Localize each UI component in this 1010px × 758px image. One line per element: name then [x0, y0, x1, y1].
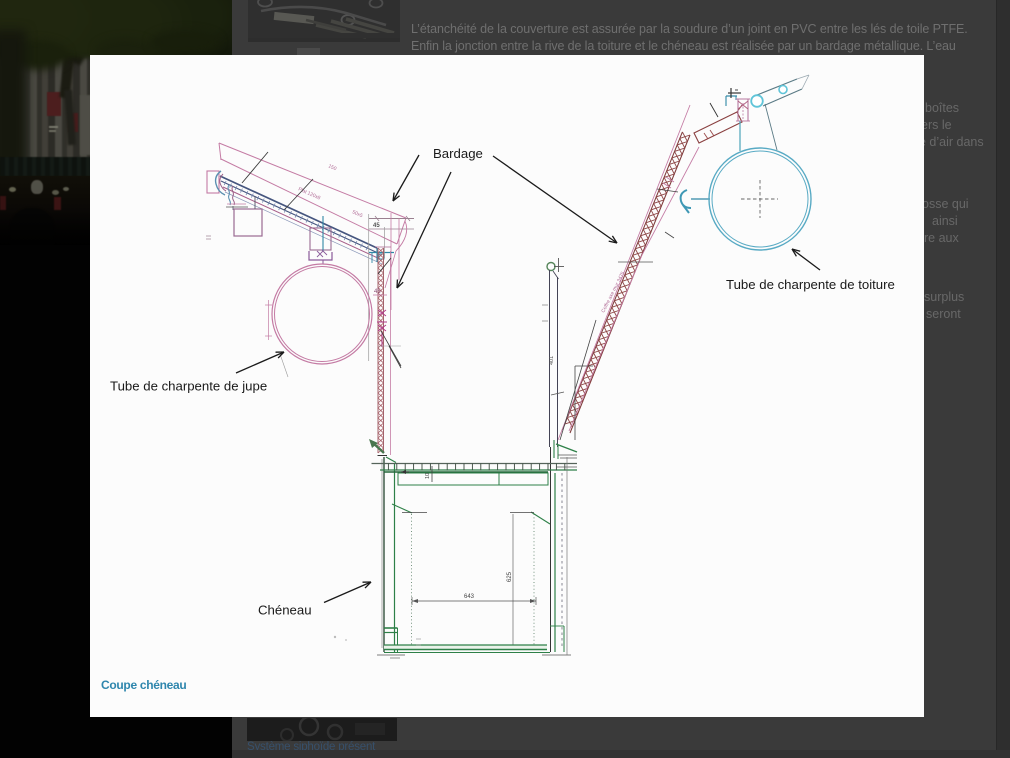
svg-text:50x5: 50x5 — [351, 209, 364, 219]
svg-text:150: 150 — [327, 163, 337, 172]
svg-text:Chéneau: Chéneau — [258, 603, 312, 618]
svg-text:10: 10 — [425, 473, 431, 479]
svg-text:45: 45 — [374, 289, 381, 295]
svg-text:Plat 120x8: Plat 120x8 — [297, 186, 321, 201]
svg-text:625: 625 — [507, 571, 513, 582]
svg-text:401: 401 — [549, 356, 555, 365]
svg-text:Tube de charpente de jupe: Tube de charpente de jupe — [110, 379, 267, 394]
svg-text:Tube de charpente de toiture: Tube de charpente de toiture — [726, 277, 895, 292]
svg-text:Bardage: Bardage — [433, 146, 483, 161]
svg-text:45: 45 — [373, 223, 380, 229]
svg-text:643: 643 — [464, 594, 475, 600]
